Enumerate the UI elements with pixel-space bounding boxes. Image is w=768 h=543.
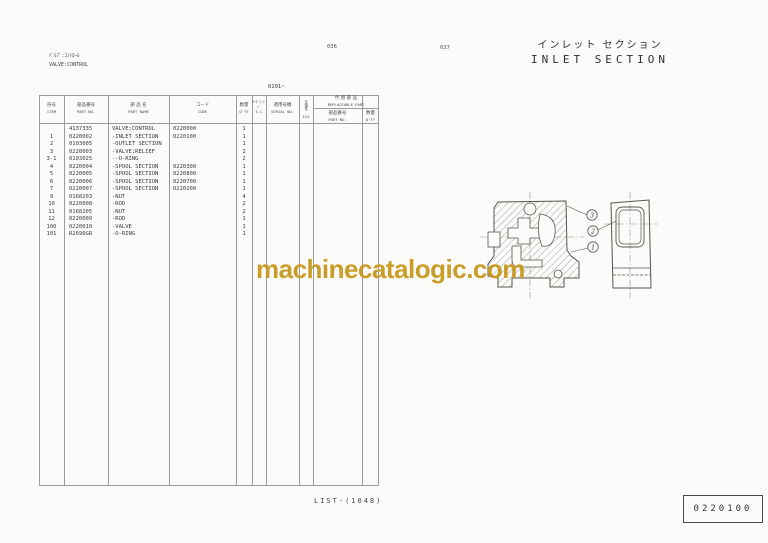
table-cell-serial	[266, 186, 299, 194]
list-reference: LIST-(1048)	[314, 497, 382, 505]
table-cell-ica	[299, 171, 313, 179]
section-title-jp: インレット セクション	[520, 36, 680, 51]
table-cell-item: 4	[39, 164, 64, 172]
table-cell-qty: 1	[236, 179, 252, 187]
table-cell-sc	[252, 224, 266, 232]
table-cell-r_part_no	[313, 216, 362, 224]
table-cell-r_part_no	[313, 201, 362, 209]
table-cell-r_qty	[362, 186, 379, 194]
table-cell-r_qty	[362, 216, 379, 224]
table-cell-r_part_no	[313, 194, 362, 202]
table-cell-ica	[299, 201, 313, 209]
serial-range: 0101~	[268, 84, 285, 90]
table-row: 50220005-SPOOL SECTION02208001	[39, 171, 379, 179]
table-cell-r_part_no	[313, 224, 362, 232]
table-cell-code	[169, 201, 236, 209]
col-header-part-no: 部品番号 PART NO.	[64, 103, 108, 114]
col-header-repl-qty: 数量 Q'TY	[362, 111, 379, 122]
catalog-page: ﾊﾞﾙﾌﾞ:ｺﾝﾄﾛｰﾙ VALVE:CONTROL 036 037 インレット…	[0, 0, 768, 543]
table-cell-part_name: -ROD	[108, 201, 169, 209]
table-cell-serial	[266, 224, 299, 232]
table-cell-qty: 1	[236, 186, 252, 194]
table-cell-serial	[266, 164, 299, 172]
section-title: インレット セクション INLET SECTION	[520, 36, 680, 66]
table-cell-r_qty	[362, 194, 379, 202]
table-cell-part_no: 0103025	[64, 156, 108, 164]
table-cell-r_qty	[362, 201, 379, 209]
page-number-right: 037	[440, 45, 450, 51]
table-cell-ica	[299, 149, 313, 157]
table-cell-code	[169, 231, 236, 239]
table-cell-code	[169, 156, 236, 164]
table-cell-part_name: --O-RING	[108, 156, 169, 164]
table-cell-item: 100	[39, 224, 64, 232]
table-cell-part_name: -SPOOL SECTION	[108, 171, 169, 179]
table-cell-r_qty	[362, 231, 379, 239]
table-cell-serial	[266, 171, 299, 179]
table-cell-code: 0220100	[169, 134, 236, 142]
table-cell-part_no: 0220010	[64, 224, 108, 232]
watermark: machinecatalogic.com	[256, 254, 525, 285]
table-cell-ica	[299, 209, 313, 217]
table-cell-sc	[252, 141, 266, 149]
table-cell-code: 0220300	[169, 164, 236, 172]
table-cell-sc	[252, 231, 266, 239]
table-cell-r_qty	[362, 141, 379, 149]
table-cell-ica	[299, 194, 313, 202]
table-cell-part_no: 0220005	[64, 171, 108, 179]
table-cell-part_name: -O-RING	[108, 231, 169, 239]
table-cell-item: 5	[39, 171, 64, 179]
section-title-en: INLET SECTION	[520, 53, 680, 66]
table-cell-sc	[252, 149, 266, 157]
table-cell-r_part_no	[313, 149, 362, 157]
table-cell-part_no: 0220008	[64, 201, 108, 209]
col-header-qty: 数量 Q'TY	[236, 103, 252, 114]
table-cell-item: 7	[39, 186, 64, 194]
table-cell-r_part_no	[313, 164, 362, 172]
table-cell-item: 101	[39, 231, 64, 239]
table-cell-ica	[299, 134, 313, 142]
table-cell-part_no: 0220002	[64, 134, 108, 142]
table-cell-r_part_no	[313, 231, 362, 239]
table-cell-code	[169, 149, 236, 157]
table-row: 90168203-NUT4	[39, 194, 379, 202]
table-cell-sc	[252, 194, 266, 202]
col-header-code: コード CODE	[169, 103, 236, 114]
table-cell-sc	[252, 216, 266, 224]
table-cell-item: 3-1	[39, 156, 64, 164]
table-row: 1000220010-VALVE1	[39, 224, 379, 232]
col-header-sc: ｻｰﾋﾞｽ ｺｰﾄﾞ S-C	[252, 100, 266, 114]
code-box-value: 0220100	[694, 504, 753, 514]
page-number-left: 036	[327, 44, 337, 50]
callout-label-1: 1	[591, 244, 595, 252]
table-cell-item: 11	[39, 209, 64, 217]
table-cell-item: 12	[39, 216, 64, 224]
table-cell-r_qty	[362, 171, 379, 179]
table-cell-part_no: 0220007	[64, 186, 108, 194]
table-cell-code: 0220200	[169, 186, 236, 194]
table-cell-item	[39, 126, 64, 134]
table-cell-qty: 4	[236, 194, 252, 202]
table-cell-serial	[266, 126, 299, 134]
table-cell-serial	[266, 216, 299, 224]
table-cell-qty: 2	[236, 201, 252, 209]
table-cell-item: 2	[39, 141, 64, 149]
table-cell-part_no: 0220004	[64, 164, 108, 172]
table-cell-ica	[299, 179, 313, 187]
table-cell-sc	[252, 134, 266, 142]
table-cell-part_name: -SPOOL SECTION	[108, 186, 169, 194]
table-cell-sc	[252, 156, 266, 164]
table-cell-qty: 1	[236, 231, 252, 239]
parts-table: 符号 ITEM 部品番号 PART NO. 部 品 名 PART NAME コー…	[39, 95, 379, 485]
table-cell-code	[169, 209, 236, 217]
table-cell-qty: 2	[236, 149, 252, 157]
table-cell-qty: 1	[236, 126, 252, 134]
table-cell-qty: 1	[236, 171, 252, 179]
table-cell-r_qty	[362, 156, 379, 164]
table-cell-part_no: 0220006	[64, 179, 108, 187]
table-cell-code	[169, 194, 236, 202]
table-cell-part_name: -ROD	[108, 216, 169, 224]
table-cell-serial	[266, 134, 299, 142]
col-header-serial: 適用号機 SERIAL NO.	[266, 103, 299, 114]
table-row: 70220007-SPOOL SECTION02202001	[39, 186, 379, 194]
table-cell-r_qty	[362, 224, 379, 232]
table-cell-part_name: -NUT	[108, 209, 169, 217]
table-cell-serial	[266, 141, 299, 149]
table-cell-sc	[252, 126, 266, 134]
table-row: 3-10103025--O-RING2	[39, 156, 379, 164]
table-cell-item: 6	[39, 179, 64, 187]
table-cell-sc	[252, 201, 266, 209]
table-cell-serial	[266, 156, 299, 164]
table-cell-item: 10	[39, 201, 64, 209]
table-cell-serial	[266, 149, 299, 157]
table-cell-qty: 1	[236, 164, 252, 172]
table-line	[313, 108, 379, 109]
table-cell-qty: 1	[236, 224, 252, 232]
table-line	[39, 485, 379, 486]
table-cell-item: 9	[39, 194, 64, 202]
table-cell-code: 0220700	[169, 179, 236, 187]
table-cell-r_part_no	[313, 156, 362, 164]
table-cell-part_name: -OUTLET SECTION	[108, 141, 169, 149]
table-cell-part_name: -INLET SECTION	[108, 134, 169, 142]
table-row: 110168205-NUT2	[39, 209, 379, 217]
model-label-jp: ﾊﾞﾙﾌﾞ:ｺﾝﾄﾛｰﾙ	[49, 53, 80, 59]
table-row: 100220008-ROD2	[39, 201, 379, 209]
table-cell-ica	[299, 216, 313, 224]
table-cell-code: 0220000	[169, 126, 236, 134]
table-cell-part_no: 0103005	[64, 141, 108, 149]
table-cell-r_part_no	[313, 134, 362, 142]
table-cell-r_part_no	[313, 171, 362, 179]
table-cell-serial	[266, 201, 299, 209]
table-line	[39, 123, 379, 124]
table-cell-sc	[252, 209, 266, 217]
table-cell-serial	[266, 194, 299, 202]
table-cell-r_qty	[362, 149, 379, 157]
table-row: 4137335VALVE;CONTROL02200001	[39, 126, 379, 134]
col-header-replaceable: 代 替 部 品 REPLACEABLE PART	[313, 96, 379, 107]
table-cell-part_name: -SPOOL SECTION	[108, 164, 169, 172]
table-row: 60220006-SPOOL SECTION02207001	[39, 179, 379, 187]
table-cell-ica	[299, 231, 313, 239]
table-cell-r_part_no	[313, 209, 362, 217]
callout-label-2: 2	[590, 228, 595, 236]
valve-side-view	[611, 200, 651, 288]
port-boss	[488, 232, 500, 247]
table-cell-ica	[299, 164, 313, 172]
table-cell-code: 0220800	[169, 171, 236, 179]
table-cell-part_no: 0168203	[64, 194, 108, 202]
table-cell-part_no: 0220003	[64, 149, 108, 157]
table-cell-part_name: -VALVE;RELIEF	[108, 149, 169, 157]
table-cell-serial	[266, 209, 299, 217]
col-header-ica: 互換性 ICA	[299, 97, 313, 123]
table-cell-code	[169, 141, 236, 149]
table-cell-r_part_no	[313, 141, 362, 149]
parts-table-rows: 4137335VALVE;CONTROL0220000110220002-INL…	[39, 126, 379, 239]
table-cell-r_qty	[362, 209, 379, 217]
col-header-part-name: 部 品 名 PART NAME	[108, 103, 169, 114]
callouts: 3 2 1	[567, 206, 616, 252]
table-row: 120220009-ROD1	[39, 216, 379, 224]
table-cell-part_no: 4137335	[64, 126, 108, 134]
lower-hole	[554, 270, 562, 278]
table-cell-code	[169, 224, 236, 232]
callout-label-3: 3	[590, 212, 594, 220]
table-cell-part_name: -SPOOL SECTION	[108, 179, 169, 187]
table-cell-serial	[266, 179, 299, 187]
table-cell-ica	[299, 126, 313, 134]
table-cell-ica	[299, 224, 313, 232]
table-row: 101R2690GR-O-RING1	[39, 231, 379, 239]
model-label-en: VALVE:CONTROL	[49, 62, 88, 68]
table-row: 20103005-OUTLET SECTION1	[39, 141, 379, 149]
table-cell-ica	[299, 186, 313, 194]
code-box: 0220100	[683, 495, 763, 523]
table-cell-qty: 2	[236, 156, 252, 164]
table-cell-r_qty	[362, 134, 379, 142]
table-cell-part_no: 0168205	[64, 209, 108, 217]
table-cell-qty: 1	[236, 134, 252, 142]
table-cell-part_no: R2690GR	[64, 231, 108, 239]
table-cell-r_qty	[362, 126, 379, 134]
table-cell-sc	[252, 171, 266, 179]
table-cell-part_name: -VALVE	[108, 224, 169, 232]
table-cell-r_qty	[362, 179, 379, 187]
table-cell-part_name: -NUT	[108, 194, 169, 202]
table-cell-part_no: 0220009	[64, 216, 108, 224]
bolt-hole	[524, 203, 536, 215]
table-cell-r_part_no	[313, 126, 362, 134]
table-cell-ica	[299, 141, 313, 149]
table-cell-sc	[252, 186, 266, 194]
table-cell-code	[169, 216, 236, 224]
table-cell-serial	[266, 231, 299, 239]
table-cell-item: 1	[39, 134, 64, 142]
table-cell-ica	[299, 156, 313, 164]
table-cell-part_name: VALVE;CONTROL	[108, 126, 169, 134]
table-cell-sc	[252, 179, 266, 187]
table-cell-item: 3	[39, 149, 64, 157]
col-header-item: 符号 ITEM	[39, 103, 64, 114]
col-header-repl-part-no: 部品番号 PART NO.	[313, 111, 362, 122]
table-cell-qty: 1	[236, 141, 252, 149]
table-row: 40220004-SPOOL SECTION02203001	[39, 164, 379, 172]
table-cell-qty: 2	[236, 209, 252, 217]
inlet-section-drawing: 3 2 1	[478, 190, 670, 302]
table-row: 30220003-VALVE;RELIEF2	[39, 149, 379, 157]
table-row: 10220002-INLET SECTION02201001	[39, 134, 379, 142]
table-cell-r_part_no	[313, 186, 362, 194]
table-cell-r_part_no	[313, 179, 362, 187]
table-cell-qty: 1	[236, 216, 252, 224]
table-cell-r_qty	[362, 164, 379, 172]
table-cell-sc	[252, 164, 266, 172]
